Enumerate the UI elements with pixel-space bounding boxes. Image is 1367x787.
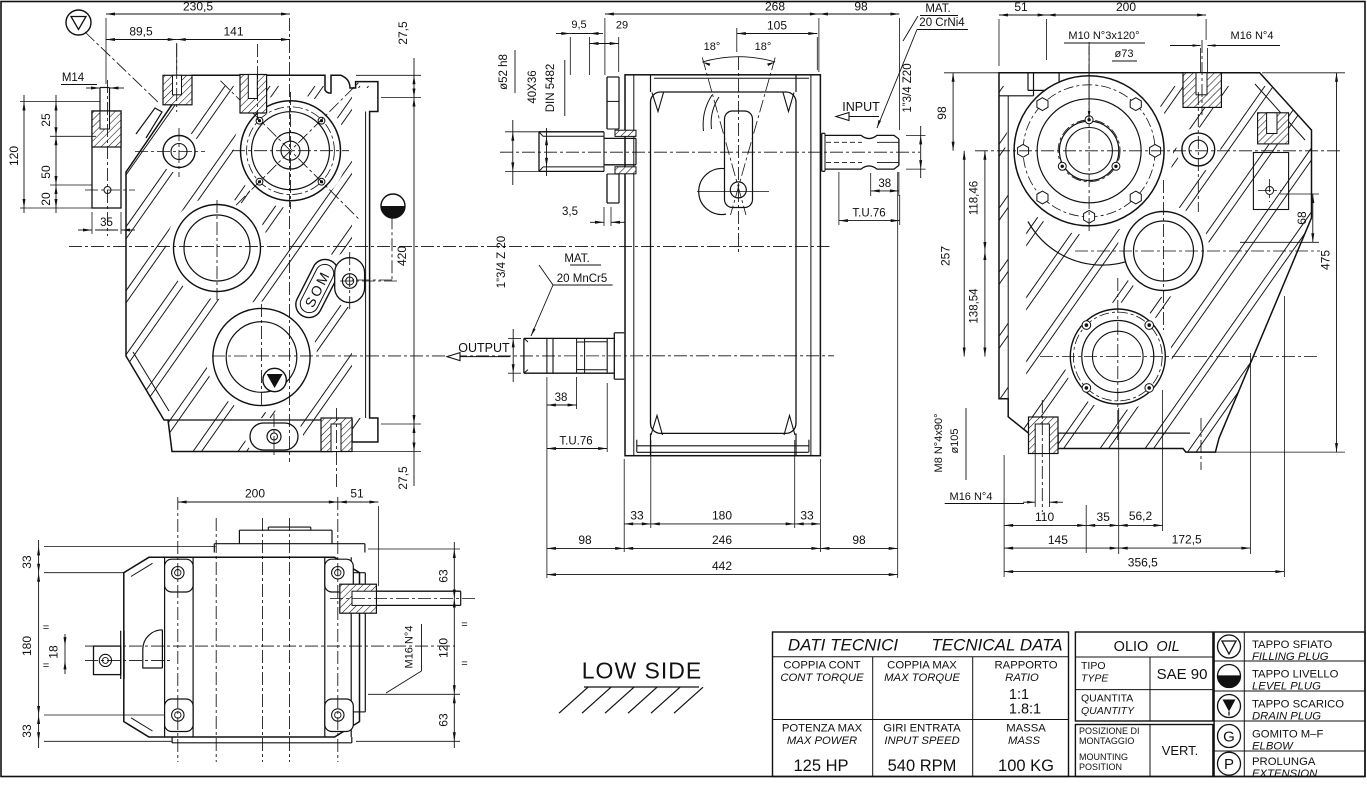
svg-text:200: 200 bbox=[245, 487, 265, 501]
svg-text:TECNICAL DATA: TECNICAL DATA bbox=[931, 636, 1062, 655]
svg-text:20 CrNi4: 20 CrNi4 bbox=[919, 17, 965, 29]
svg-text:ø52 h8: ø52 h8 bbox=[498, 54, 510, 90]
svg-text:TAPPO SFIATO: TAPPO SFIATO bbox=[1252, 639, 1333, 651]
svg-text:56,2: 56,2 bbox=[1129, 509, 1153, 523]
svg-text:GIRI ENTRATA: GIRI ENTRATA bbox=[883, 723, 961, 735]
svg-text:98: 98 bbox=[578, 533, 592, 547]
svg-text:OUTPUT: OUTPUT bbox=[458, 341, 510, 355]
svg-text:1”3/4 Z 20: 1”3/4 Z 20 bbox=[496, 236, 508, 288]
svg-text:35: 35 bbox=[1097, 510, 1111, 524]
svg-text:DRAIN PLUG: DRAIN PLUG bbox=[1252, 711, 1321, 723]
svg-text:20: 20 bbox=[39, 192, 53, 206]
svg-text:356,5: 356,5 bbox=[1128, 556, 1158, 570]
svg-text:QUANTITY: QUANTITY bbox=[1081, 705, 1135, 717]
svg-text:110: 110 bbox=[1035, 510, 1054, 524]
svg-text:29: 29 bbox=[616, 20, 628, 32]
svg-text:25: 25 bbox=[39, 113, 53, 127]
svg-text:540 RPM: 540 RPM bbox=[888, 757, 957, 775]
svg-text:G: G bbox=[1223, 729, 1235, 746]
svg-text:TYPE: TYPE bbox=[1081, 673, 1109, 685]
svg-text:33: 33 bbox=[20, 555, 34, 569]
svg-text:MOUNTING: MOUNTING bbox=[1079, 752, 1128, 762]
svg-text:FILLING PLUG: FILLING PLUG bbox=[1252, 651, 1329, 663]
svg-text:63: 63 bbox=[437, 569, 451, 583]
svg-text:M16 N°4: M16 N°4 bbox=[950, 491, 993, 503]
svg-text:M16 N°4: M16 N°4 bbox=[1231, 30, 1274, 42]
svg-text:33: 33 bbox=[20, 724, 34, 738]
svg-text:18°: 18° bbox=[755, 41, 772, 53]
svg-text:MAT.: MAT. bbox=[925, 3, 950, 15]
svg-text:246: 246 bbox=[712, 533, 732, 547]
svg-text:MONTAGGIO: MONTAGGIO bbox=[1079, 736, 1134, 746]
svg-text:18°: 18° bbox=[704, 41, 721, 53]
svg-text:33: 33 bbox=[630, 509, 644, 523]
svg-text:172,5: 172,5 bbox=[1172, 533, 1202, 547]
svg-text:1”3/4 Z20: 1”3/4 Z20 bbox=[902, 63, 914, 112]
svg-text:=: = bbox=[43, 660, 49, 672]
svg-text:ø73: ø73 bbox=[1115, 48, 1134, 60]
svg-text:TIPO: TIPO bbox=[1081, 660, 1106, 672]
svg-text:268: 268 bbox=[765, 0, 785, 14]
svg-text:LOW SIDE: LOW SIDE bbox=[582, 658, 702, 684]
svg-text:27,5: 27,5 bbox=[396, 21, 410, 45]
svg-text:TAPPO SCARICO: TAPPO SCARICO bbox=[1252, 699, 1344, 711]
svg-text:INPUT SPEED: INPUT SPEED bbox=[884, 735, 959, 747]
svg-text:38: 38 bbox=[555, 392, 568, 404]
svg-text:9,5: 9,5 bbox=[571, 19, 586, 31]
svg-text:18: 18 bbox=[47, 645, 61, 659]
svg-text:33: 33 bbox=[800, 509, 814, 523]
svg-text:120: 120 bbox=[7, 146, 21, 166]
svg-text:51: 51 bbox=[1014, 0, 1028, 14]
svg-text:3,5: 3,5 bbox=[562, 206, 578, 218]
svg-text:SAE 90: SAE 90 bbox=[1157, 666, 1208, 683]
svg-text:MAX TORQUE: MAX TORQUE bbox=[884, 672, 960, 684]
svg-text:MAX POWER: MAX POWER bbox=[787, 735, 857, 747]
svg-text:230,5: 230,5 bbox=[183, 0, 213, 14]
svg-text:=: = bbox=[461, 658, 467, 670]
svg-text:20 MnCr5: 20 MnCr5 bbox=[557, 273, 608, 285]
svg-text:PROLUNGA: PROLUNGA bbox=[1252, 756, 1316, 768]
svg-text:180: 180 bbox=[712, 509, 732, 523]
svg-text:98: 98 bbox=[935, 106, 949, 120]
svg-text:51: 51 bbox=[350, 487, 364, 501]
svg-text:35: 35 bbox=[100, 217, 113, 229]
svg-text:=: = bbox=[43, 622, 49, 634]
svg-text:MAT.: MAT. bbox=[564, 253, 589, 265]
svg-text:1.8:1: 1.8:1 bbox=[1009, 702, 1041, 718]
svg-text:118,46: 118,46 bbox=[968, 181, 980, 215]
svg-text:VERT.: VERT. bbox=[1162, 743, 1199, 758]
svg-text:QUANTITA: QUANTITA bbox=[1081, 693, 1133, 705]
svg-text:M8 N°4x90°: M8 N°4x90° bbox=[933, 414, 945, 473]
svg-text:=: = bbox=[461, 619, 467, 631]
svg-text:TAPPO LIVELLO: TAPPO LIVELLO bbox=[1252, 669, 1339, 681]
svg-text:COPPIA CONT: COPPIA CONT bbox=[783, 660, 860, 672]
svg-text:POTENZA MAX: POTENZA MAX bbox=[782, 723, 863, 735]
svg-text:68: 68 bbox=[1295, 211, 1309, 225]
svg-text:T.U.76: T.U.76 bbox=[559, 436, 592, 448]
svg-text:COPPIA MAX: COPPIA MAX bbox=[887, 660, 957, 672]
svg-text:P: P bbox=[1224, 756, 1234, 773]
svg-text:LEVEL PLUG: LEVEL PLUG bbox=[1252, 681, 1321, 693]
svg-text:475: 475 bbox=[1319, 250, 1333, 270]
svg-text:200: 200 bbox=[1116, 0, 1136, 14]
svg-text:MASS: MASS bbox=[1008, 735, 1040, 747]
svg-text:27,5: 27,5 bbox=[396, 466, 410, 490]
svg-text:EXTENSION: EXTENSION bbox=[1252, 768, 1318, 780]
svg-text:OLIO: OLIO bbox=[1114, 639, 1149, 655]
svg-text:GOMITO M–F: GOMITO M–F bbox=[1252, 729, 1323, 741]
svg-text:M16 N°4: M16 N°4 bbox=[404, 626, 416, 669]
svg-text:50: 50 bbox=[39, 165, 53, 179]
svg-text:CONT TORQUE: CONT TORQUE bbox=[780, 672, 864, 684]
svg-text:105: 105 bbox=[767, 19, 787, 33]
svg-text:DIN 5482: DIN 5482 bbox=[545, 64, 557, 113]
svg-text:100 KG: 100 KG bbox=[998, 757, 1054, 775]
svg-text:138,54: 138,54 bbox=[968, 288, 980, 324]
svg-text:T.U.76: T.U.76 bbox=[852, 208, 885, 220]
svg-text:RATIO: RATIO bbox=[1005, 672, 1039, 684]
svg-text:OIL: OIL bbox=[1156, 639, 1179, 655]
svg-text:180: 180 bbox=[20, 636, 34, 656]
svg-text:98: 98 bbox=[854, 0, 868, 14]
svg-text:89,5: 89,5 bbox=[129, 25, 153, 39]
svg-text:63: 63 bbox=[437, 713, 451, 727]
svg-text:POSITION: POSITION bbox=[1079, 762, 1122, 772]
svg-text:M14: M14 bbox=[62, 72, 85, 84]
svg-text:ø105: ø105 bbox=[949, 428, 961, 453]
svg-text:141: 141 bbox=[223, 25, 243, 39]
svg-text:MASSA: MASSA bbox=[1006, 723, 1046, 735]
svg-text:125 HP: 125 HP bbox=[793, 757, 848, 775]
svg-text:POSIZIONE DI: POSIZIONE DI bbox=[1079, 726, 1140, 736]
svg-text:RAPPORTO: RAPPORTO bbox=[995, 660, 1058, 672]
svg-text:98: 98 bbox=[852, 533, 866, 547]
svg-text:257: 257 bbox=[939, 246, 953, 266]
svg-text:120: 120 bbox=[437, 638, 451, 658]
svg-text:420: 420 bbox=[395, 246, 409, 266]
svg-text:ELBOW: ELBOW bbox=[1252, 741, 1294, 753]
svg-text:DATI TECNICI: DATI TECNICI bbox=[788, 636, 898, 655]
svg-text:M10 N°3x120°: M10 N°3x120° bbox=[1068, 30, 1139, 42]
svg-text:38: 38 bbox=[878, 178, 891, 190]
svg-text:40X36: 40X36 bbox=[527, 70, 539, 103]
svg-text:145: 145 bbox=[1048, 533, 1068, 547]
svg-text:442: 442 bbox=[712, 559, 732, 573]
svg-text:INPUT: INPUT bbox=[842, 100, 880, 114]
